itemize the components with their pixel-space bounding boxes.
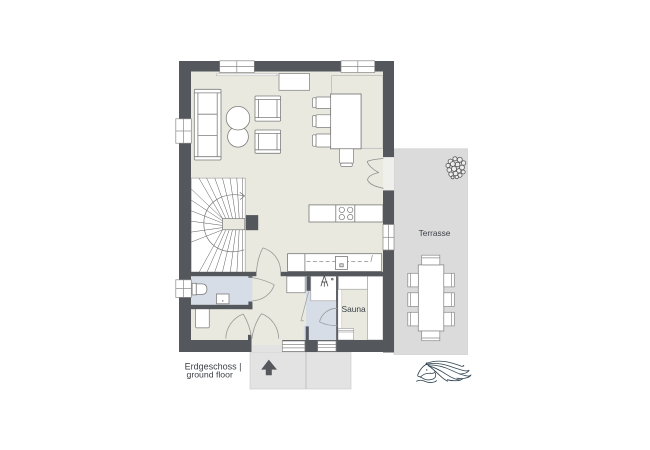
svg-text:ground floor: ground floor — [187, 369, 233, 379]
svg-text:Terrasse: Terrasse — [419, 228, 451, 238]
svg-text:Sauna: Sauna — [341, 304, 366, 314]
